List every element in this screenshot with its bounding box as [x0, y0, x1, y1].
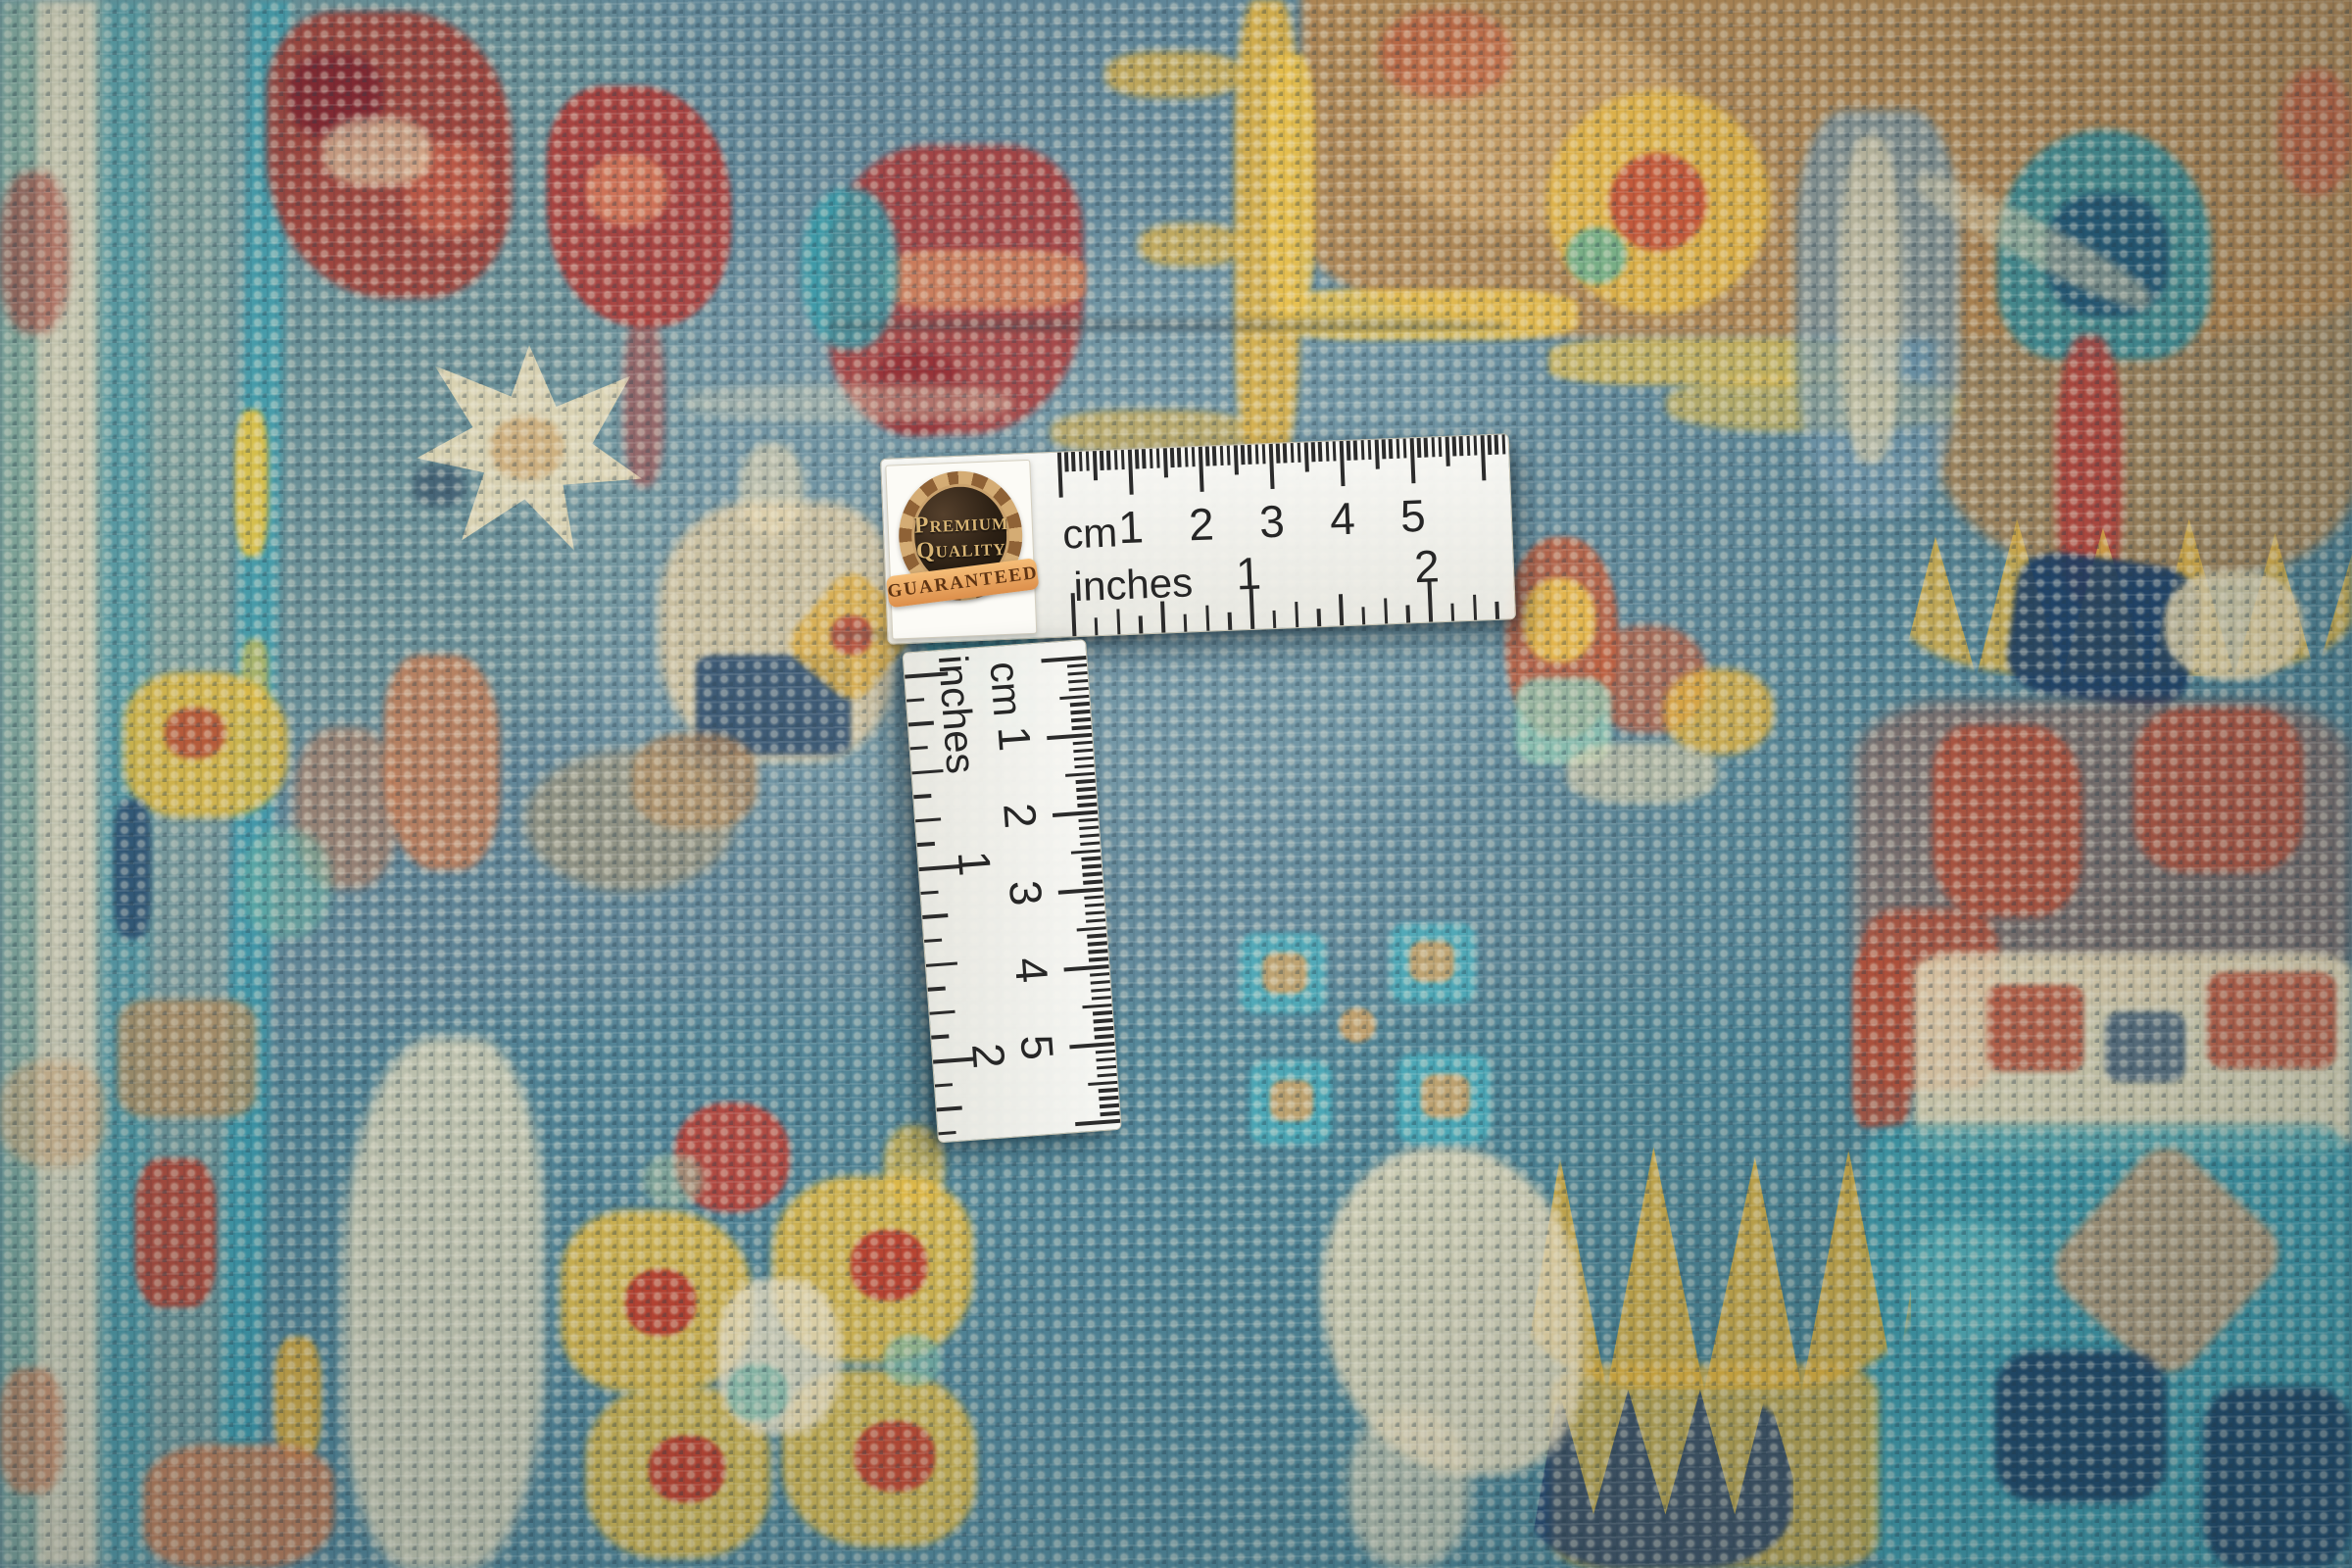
border-navy-dash — [114, 800, 151, 939]
tan-mass-spike — [740, 443, 804, 536]
ruler-tick — [1077, 795, 1097, 800]
ruler-tick — [1156, 449, 1160, 468]
ruler-tick — [1078, 817, 1098, 822]
ruler-tick — [1170, 448, 1174, 467]
ruler-tick — [906, 698, 924, 703]
gold-vine-branch-2 — [1139, 223, 1241, 267]
ruler-tick — [1254, 445, 1258, 465]
ruler-tick — [935, 1083, 953, 1088]
ruler-tick — [1076, 779, 1096, 784]
ruler-tick — [1093, 1010, 1112, 1015]
ruler-tick — [915, 817, 941, 822]
ruler-tick — [1086, 451, 1090, 470]
ruler-tick — [1495, 602, 1499, 619]
navy-square-cream — [2105, 1011, 2185, 1082]
ruler-tick — [928, 987, 946, 992]
border-gold-dash-bottom — [274, 1337, 321, 1460]
ruler-tick — [1077, 926, 1106, 932]
ruler-tick — [1192, 447, 1196, 466]
tan-curl — [524, 750, 735, 892]
ruler-tick — [910, 746, 928, 751]
ruler-tick — [1128, 450, 1133, 495]
ruler-number: 1 — [1235, 547, 1262, 601]
cream-star-center — [490, 416, 563, 479]
ruler-tick — [1473, 595, 1478, 620]
ruler-tick — [1276, 444, 1280, 464]
ruler-tick — [1481, 435, 1486, 480]
ruler-tick — [1406, 605, 1410, 622]
ruler-tick — [1069, 687, 1089, 692]
ruler-tick — [1064, 964, 1109, 971]
ruler-tick — [1459, 436, 1463, 456]
ruler-tick — [926, 961, 957, 967]
flower-gold-2 — [1664, 668, 1774, 755]
ruler-tick — [1501, 434, 1505, 454]
cream-wave-right-tail — [1347, 1409, 1470, 1568]
ruler-tick — [1072, 725, 1092, 730]
ruler-tick — [1091, 988, 1110, 993]
ruler-tick — [1177, 448, 1181, 467]
ruler-tick — [1080, 841, 1100, 846]
ruler-tick — [1090, 972, 1109, 977]
ruler-number: 2 — [1413, 539, 1441, 593]
ruler-tick — [1100, 451, 1103, 470]
border-red-dash-bottom — [135, 1158, 216, 1307]
ruler-tick — [931, 1035, 949, 1040]
teal-square-1-tan — [1262, 953, 1307, 994]
dark-streak — [828, 318, 1509, 332]
ruler-tick — [1053, 810, 1098, 817]
ruler-tick — [1113, 450, 1117, 469]
ruler-tick — [1047, 733, 1092, 740]
border-tan-corner — [0, 1060, 106, 1166]
ruler-tick — [1100, 1103, 1119, 1108]
ruler-tick — [920, 890, 938, 895]
ruler-tick — [1106, 451, 1110, 470]
ruler-unit-label: cm — [1061, 509, 1118, 558]
ruler-tick — [1070, 702, 1090, 707]
ruler-tick — [1295, 602, 1299, 627]
red-flower-sage — [643, 1154, 704, 1205]
ruler-tick — [1073, 741, 1093, 746]
navy-motif-1 — [1995, 1350, 2167, 1502]
medal-icon: Premium Quality GUARANTEED — [897, 468, 1025, 603]
rust-shape-2 — [2134, 708, 2303, 872]
ruler-tick — [1317, 609, 1321, 626]
flower-teal-2 — [884, 1335, 941, 1386]
ruler-tick — [1057, 453, 1062, 498]
border-cream-hook-top — [323, 118, 431, 186]
ruler-tick — [1199, 447, 1203, 492]
ruler-tick — [1205, 447, 1209, 466]
ruler-tick — [1325, 442, 1329, 462]
ruler-tick — [1269, 444, 1274, 489]
stripe-gold-dash — [235, 410, 269, 557]
ruler-tick — [1084, 895, 1103, 900]
ruler-tick — [938, 1131, 955, 1136]
ruler-tick — [913, 794, 931, 799]
ruler-tick — [1077, 803, 1097, 808]
brown-gold-edge-v — [1266, 54, 1315, 309]
ruler-tick — [1080, 833, 1100, 838]
ruler-tick — [1067, 671, 1087, 676]
ruler-tick — [1099, 1096, 1118, 1101]
navy-motif-2 — [2203, 1387, 2352, 1568]
ruler-tick — [1083, 880, 1102, 885]
ruler-tick — [1142, 449, 1146, 468]
tan-dot-mid — [1339, 1007, 1376, 1043]
ruler-tick — [1290, 443, 1294, 463]
border-teal-accent — [241, 829, 331, 939]
ruler-number: 2 — [961, 1042, 1016, 1070]
ruler-tick — [1097, 1065, 1116, 1070]
ruler-tick — [1068, 679, 1088, 684]
brown-red-top — [1380, 10, 1512, 98]
ruler-tick — [929, 1010, 955, 1015]
ruler-unit-label: cm — [981, 660, 1032, 717]
ruler-tick — [1389, 439, 1393, 459]
navy-dash-field — [414, 465, 465, 507]
cream-wave-bottomleft — [343, 1037, 544, 1568]
rust-bar-vertical — [1852, 953, 1911, 1127]
ruler-tick — [1360, 440, 1364, 460]
ruler-tick — [937, 1106, 962, 1111]
ruler-tick — [1183, 614, 1187, 632]
ruler-tick — [1438, 437, 1442, 457]
ruler-tick — [1382, 439, 1386, 459]
pinwheel-coral-bar — [880, 250, 1086, 309]
teal-square-4-tan — [1421, 1074, 1470, 1118]
ruler-horizontal-arm: Premium Quality GUARANTEED cm12345inches… — [880, 433, 1516, 645]
ruler-tick — [1452, 436, 1456, 456]
ruler-tick — [1091, 980, 1110, 985]
ruler-tick — [1248, 445, 1251, 465]
ruler-tick — [1074, 756, 1094, 760]
ruler-tick — [1466, 436, 1470, 456]
ruler-tick — [1262, 444, 1266, 464]
ruler-tick — [1093, 451, 1098, 480]
border-coral-edge — [0, 1368, 63, 1494]
ruler-tick — [1431, 437, 1435, 457]
brown-red-right — [2278, 69, 2352, 196]
ruler-tick — [1384, 598, 1389, 623]
ruler-tick — [1078, 452, 1082, 471]
ruler-tick — [1092, 996, 1111, 1001]
border-coral-steps — [384, 655, 500, 870]
ruler-tick — [1098, 1072, 1117, 1077]
ruler-tick — [1089, 956, 1108, 961]
ruler-tick — [1095, 1034, 1114, 1039]
ruler-tick — [1318, 442, 1322, 462]
ruler-number: 2 — [1188, 497, 1215, 551]
brown-flower-red — [1609, 153, 1707, 251]
pillar-cream — [1840, 135, 1901, 464]
ruler-tick — [1272, 611, 1276, 628]
ruler-tick — [1339, 594, 1344, 625]
ruler-tick — [924, 938, 942, 943]
ruler-tick — [1311, 442, 1315, 462]
red-cross-center — [586, 155, 668, 225]
red-cross-stem — [623, 316, 664, 487]
ruler-tick — [1096, 1057, 1115, 1062]
ruler-tick — [1041, 656, 1086, 662]
ruler-tick — [1297, 443, 1300, 463]
ruler-tick — [1099, 1088, 1118, 1093]
ruler-tick — [1100, 1111, 1119, 1116]
ruler-number: 1 — [987, 724, 1042, 753]
ruler-tick — [1396, 439, 1399, 459]
ruler-tick — [1340, 441, 1345, 486]
ruler-tick — [1058, 887, 1103, 894]
ruler-tick — [1093, 1018, 1112, 1023]
ruler-tick — [1081, 857, 1101, 861]
ruler-tick — [1071, 717, 1091, 722]
ruler-tick — [1402, 438, 1406, 458]
flower-by-ruler-gold — [1523, 578, 1595, 662]
ruler-tick — [1083, 872, 1102, 877]
teal-square-2-tan — [1409, 941, 1454, 982]
ruler-tick — [1488, 435, 1492, 455]
ruler-tick — [1347, 441, 1350, 461]
ruler-tick — [1304, 442, 1309, 471]
ruler-tick — [1075, 1119, 1120, 1126]
ruler-tick — [1417, 438, 1421, 458]
ruler-tick — [1228, 612, 1232, 630]
ruler-tick — [1094, 617, 1098, 635]
gold-vine-branch — [1105, 51, 1241, 98]
rug-pattern-layer — [0, 0, 2352, 1568]
ruler-tick — [1071, 849, 1101, 855]
ruler-tick — [1088, 1080, 1117, 1086]
ruler-tick — [1067, 663, 1087, 668]
rust-square-1 — [1987, 985, 2083, 1071]
cream-fleck-row — [684, 384, 1012, 421]
ruler-tick — [1450, 604, 1454, 621]
ruler-tick — [1071, 452, 1075, 471]
ruler-tick — [1088, 942, 1107, 947]
ruler-tick — [1059, 694, 1089, 700]
rug-photograph: Premium Quality GUARANTEED cm12345inches… — [0, 0, 2352, 1568]
badge-line2: Quality — [914, 536, 1007, 565]
ruler-number: 1 — [948, 849, 1003, 877]
flower-cream-tail — [1566, 743, 1718, 804]
border-red-edge-top — [0, 171, 69, 333]
ruler-tick — [1064, 452, 1068, 471]
ruler-tick — [1074, 763, 1094, 768]
flower-d-red — [855, 1421, 935, 1492]
ruler-tick — [1135, 449, 1139, 468]
brown-gold-edge-h — [1274, 289, 1578, 340]
ruler-tick — [1121, 450, 1125, 469]
ruler-tick — [1096, 1050, 1115, 1054]
ruler-number: 3 — [999, 878, 1053, 906]
flower-b-red — [851, 1230, 927, 1300]
premium-quality-badge: Premium Quality GUARANTEED — [885, 460, 1037, 640]
ruler-tick — [1353, 440, 1357, 460]
ruler-tick — [908, 721, 934, 726]
ruler-tick — [1079, 825, 1099, 830]
ruler-tick — [1424, 438, 1428, 458]
ruler-tick — [1070, 710, 1090, 714]
ruler-number: 5 — [1010, 1033, 1065, 1061]
ruler-tick — [1184, 447, 1188, 466]
ruler-tick — [1086, 918, 1105, 923]
ruler-unit-label: inches — [1073, 559, 1194, 611]
flower-c-red — [649, 1436, 725, 1502]
ruler-tick — [1082, 864, 1102, 869]
ruler-tick — [1087, 934, 1106, 939]
ruler-tick — [1205, 606, 1210, 631]
ruler-tick — [1473, 436, 1477, 456]
ruler-tick — [1076, 787, 1096, 792]
ruler-tick — [1082, 1004, 1111, 1009]
ruler-tick — [1085, 903, 1104, 907]
ruler-tick — [1088, 949, 1107, 954]
ruler-tick — [1367, 440, 1371, 460]
ruler-tick — [1332, 441, 1336, 461]
ruler-tick — [1212, 446, 1216, 465]
border-gold-flower-red — [165, 708, 225, 759]
flower-a-red — [625, 1269, 696, 1336]
ruler-number: 3 — [1258, 495, 1286, 549]
ruler-tick — [1073, 749, 1093, 754]
ruler-tick — [1361, 607, 1365, 624]
ruler-number: 1 — [1117, 500, 1145, 554]
gold-tip — [884, 1125, 945, 1205]
ruler-tick — [1494, 435, 1498, 455]
ruler-tick — [1445, 437, 1450, 466]
ruler-number: 5 — [1399, 489, 1427, 543]
ruler-tick — [1094, 1026, 1113, 1031]
ruler-tick — [1139, 615, 1143, 633]
flower-teal-1 — [727, 1364, 788, 1421]
ruler-unit-label: inches — [929, 654, 985, 776]
cream-blob-right — [2164, 570, 2303, 680]
ruler-number: 2 — [993, 802, 1048, 830]
ruler-tick — [1234, 445, 1239, 474]
ruler-tick — [1085, 910, 1104, 915]
brown-flower-teal — [1566, 227, 1627, 284]
teal-light-patch — [1906, 1220, 2029, 1343]
ruler-vertical-arm: cm12345inches12 — [903, 639, 1122, 1143]
ruler-tick — [922, 913, 948, 918]
ruler-tick — [1069, 1042, 1114, 1049]
ruler-number: 4 — [1329, 492, 1356, 546]
ruler-tick — [1227, 446, 1231, 465]
rust-shape-1 — [1933, 725, 2082, 916]
ruler-tick — [1410, 438, 1415, 483]
ruler-tick — [1163, 448, 1168, 477]
rust-square-2 — [2207, 972, 2336, 1068]
ruler-tick — [1283, 443, 1287, 463]
teal-square-3-tan — [1270, 1080, 1313, 1121]
ruler-tick — [1375, 440, 1380, 469]
border-tan-blocks — [118, 1000, 257, 1117]
ruler-number: 4 — [1004, 955, 1059, 984]
ruler-tick — [1149, 449, 1152, 468]
ruler-tick — [1065, 771, 1095, 777]
border-coral-bottom — [143, 1445, 334, 1568]
ruler-tick — [1116, 609, 1121, 634]
ruler-tick — [1219, 446, 1223, 465]
ruler-tick — [1241, 445, 1245, 465]
ruler-tick — [917, 842, 935, 847]
